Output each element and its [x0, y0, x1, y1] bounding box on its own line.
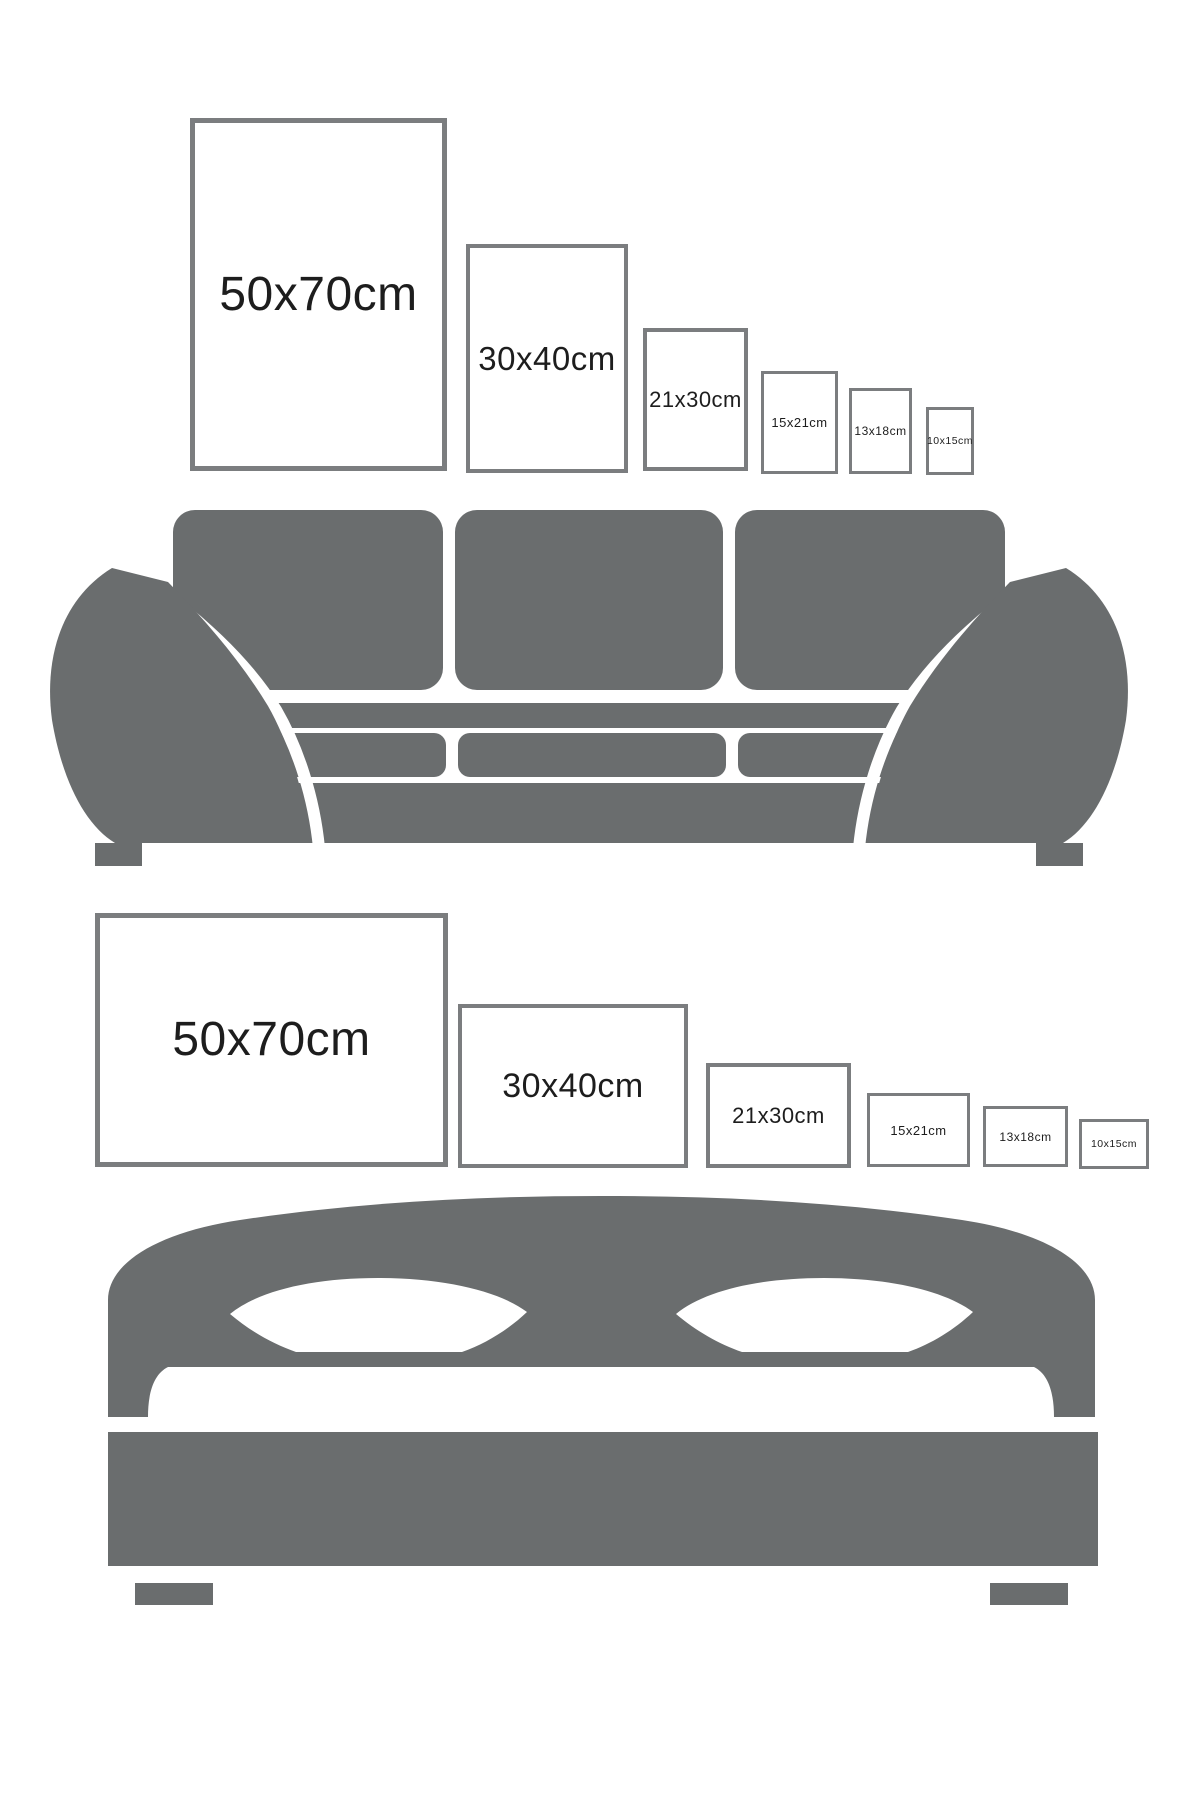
size-frame-landscape-50x70cm: 50x70cm [95, 913, 448, 1167]
size-label: 15x21cm [890, 1124, 946, 1137]
bed-frames-row: 50x70cm30x40cm21x30cm15x21cm13x18cm10x15… [0, 0, 1200, 1800]
size-label: 50x70cm [172, 1016, 370, 1064]
size-label: 30x40cm [502, 1069, 643, 1103]
size-label: 10x15cm [1091, 1139, 1137, 1150]
size-frame-landscape-15x21cm: 15x21cm [867, 1093, 970, 1167]
size-label: 21x30cm [732, 1105, 825, 1127]
size-label: 13x18cm [999, 1131, 1051, 1143]
size-frame-landscape-30x40cm: 30x40cm [458, 1004, 688, 1168]
poster-size-guide: 50x70cm30x40cm21x30cm15x21cm13x18cm10x15… [0, 0, 1200, 1800]
size-frame-landscape-10x15cm: 10x15cm [1079, 1119, 1149, 1169]
size-frame-landscape-21x30cm: 21x30cm [706, 1063, 851, 1168]
size-frame-landscape-13x18cm: 13x18cm [983, 1106, 1068, 1167]
